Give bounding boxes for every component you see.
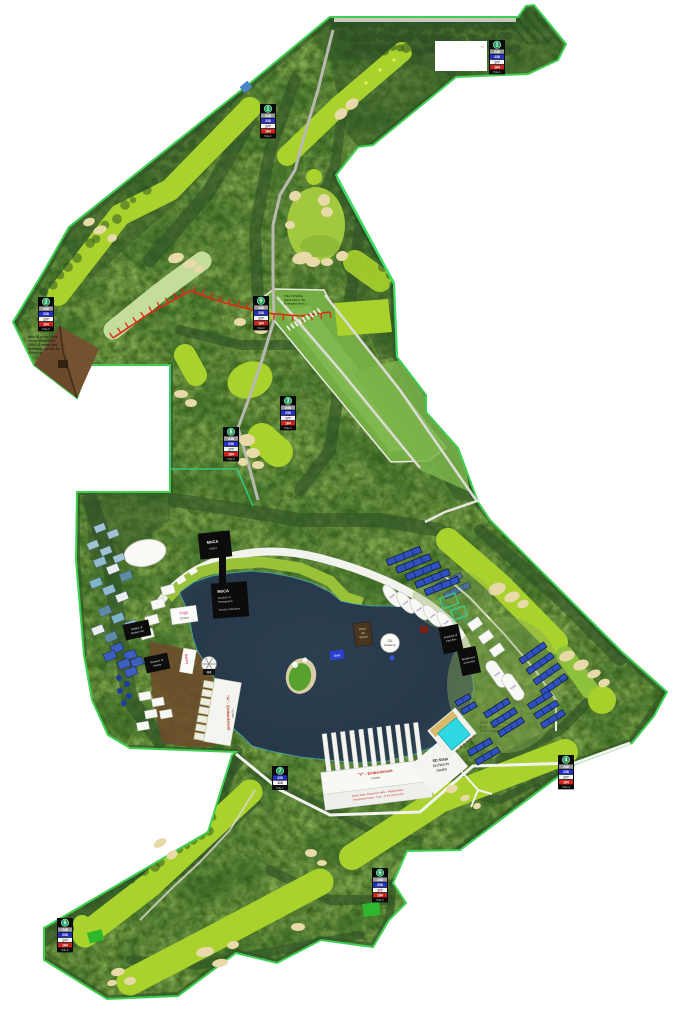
svg-text:164: 164	[494, 66, 500, 70]
svg-text:177: 177	[494, 60, 500, 64]
svg-text:177: 177	[377, 888, 383, 892]
svg-text:Mill: Mill	[207, 671, 212, 675]
svg-text:6: 6	[64, 921, 67, 927]
svg-text:248: 248	[265, 114, 271, 118]
svg-text:Hole 9: Hole 9	[258, 327, 266, 330]
svg-text:130: 130	[277, 776, 283, 780]
svg-text:238: 238	[228, 442, 234, 446]
svg-text:177: 177	[563, 775, 569, 779]
svg-text:1: 1	[496, 43, 499, 49]
svg-text:238: 238	[265, 119, 271, 123]
svg-text:3: 3	[287, 399, 290, 405]
svg-text:1: 1	[267, 107, 270, 113]
svg-text:238: 238	[494, 55, 500, 59]
svg-text:164: 164	[285, 422, 291, 426]
svg-text:177: 177	[258, 316, 264, 320]
svg-text:248: 248	[62, 928, 68, 932]
svg-text:238: 238	[258, 311, 264, 315]
svg-text:164: 164	[228, 453, 234, 457]
svg-text:4: 4	[565, 758, 568, 764]
svg-text:Hole 8: Hole 8	[228, 458, 236, 461]
svg-text:248: 248	[285, 406, 291, 410]
svg-text:177: 177	[62, 938, 68, 942]
svg-text:8: 8	[230, 430, 233, 436]
svg-text:164: 164	[265, 130, 271, 134]
svg-text:Hole 2: Hole 2	[43, 328, 51, 331]
svg-text:110: 110	[277, 781, 283, 785]
svg-text:248: 248	[258, 306, 264, 310]
svg-text:164: 164	[377, 894, 383, 898]
svg-text:238: 238	[563, 770, 569, 774]
svg-text:Hole 5: Hole 5	[377, 899, 385, 902]
svg-text:238: 238	[43, 312, 49, 316]
svg-text:248: 248	[494, 50, 500, 54]
svg-text:Hole 7: Hole 7	[277, 787, 285, 790]
svg-text:7: 7	[279, 769, 282, 775]
svg-text:Hole 6: Hole 6	[62, 949, 70, 952]
svg-text:164: 164	[43, 323, 49, 327]
svg-text:238: 238	[377, 883, 383, 887]
svg-text:177: 177	[285, 416, 291, 420]
svg-text:9: 9	[260, 299, 263, 305]
svg-text:238: 238	[62, 933, 68, 937]
svg-text:Centre: Centre	[231, 709, 235, 718]
svg-text:164: 164	[563, 781, 569, 785]
svg-text:248: 248	[43, 307, 49, 311]
svg-text:Hole 1: Hole 1	[494, 71, 502, 74]
svg-text:5: 5	[379, 871, 382, 877]
svg-text:Emergent area 1: Emergent area 1	[284, 302, 307, 306]
svg-text:MoCA: MoCA	[217, 588, 229, 594]
svg-text:248: 248	[377, 878, 383, 882]
svg-text:Hole 3: Hole 3	[285, 427, 293, 430]
svg-text:2: 2	[45, 300, 48, 306]
svg-text:248: 248	[228, 437, 234, 441]
svg-text:40 feet rig: 40 feet rig	[28, 351, 42, 355]
svg-text:248: 248	[563, 765, 569, 769]
svg-text:164: 164	[62, 944, 68, 948]
svg-text:Hole 4: Hole 4	[563, 786, 571, 789]
svg-text:Academy: Academy	[384, 643, 396, 647]
svg-text:177: 177	[265, 124, 271, 128]
svg-text:164: 164	[258, 322, 264, 326]
svg-text:177: 177	[228, 447, 234, 451]
svg-text:238: 238	[285, 411, 291, 415]
svg-text:177: 177	[43, 317, 49, 321]
svg-text:Hole 1: Hole 1	[265, 135, 273, 138]
